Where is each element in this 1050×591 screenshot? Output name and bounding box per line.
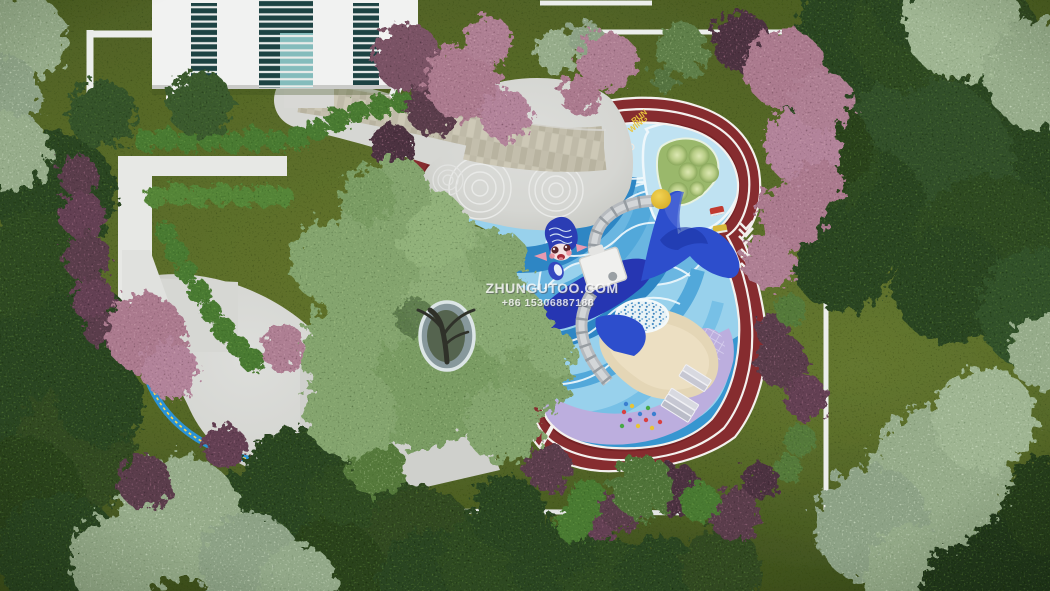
svg-text:ZHUNGUTOO.COM: ZHUNGUTOO.COM: [485, 280, 618, 296]
svg-text:+86 15306887188: +86 15306887188: [502, 297, 594, 309]
